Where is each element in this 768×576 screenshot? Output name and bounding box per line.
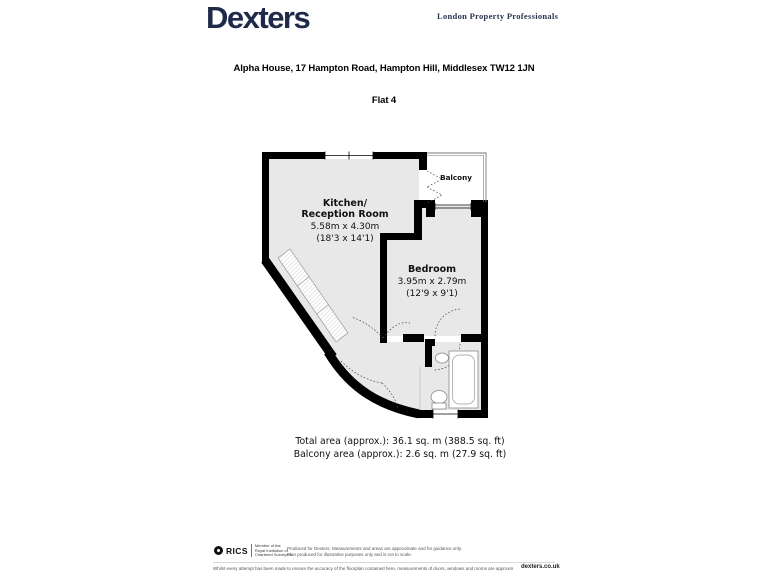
footer-divider xyxy=(213,562,555,563)
toilet xyxy=(431,391,447,404)
floorplan-drawing: Kitchen/ Reception Room 5.58m x 4.30m (1… xyxy=(256,146,492,428)
balcony-label: Balcony xyxy=(440,173,472,182)
sink xyxy=(436,353,449,363)
bedroom-label: Bedroom xyxy=(408,264,456,275)
kitchen-size-imperial: (18'3 x 14'1) xyxy=(316,234,373,244)
footer-notes: Produced for Dexters. Measurements and a… xyxy=(287,546,517,558)
website-text: dexters.co.uk xyxy=(521,564,560,570)
rics-logo-icon xyxy=(214,546,223,555)
kitchen-size-metric: 5.58m x 4.30m xyxy=(311,222,380,232)
balcony-area-text: Balcony area (approx.): 2.6 sq. m (27.9 … xyxy=(294,448,507,461)
bathtub xyxy=(449,351,478,408)
kitchen-label-line1: Kitchen/ xyxy=(323,198,368,209)
area-summary: Total area (approx.): 36.1 sq. m (388.5 … xyxy=(294,435,507,461)
unit-label: Flat 4 xyxy=(0,95,768,106)
property-address: Alpha House, 17 Hampton Road, Hampton Hi… xyxy=(0,63,768,74)
footer-disclaimer: Whilst every attempt has been made to en… xyxy=(213,566,513,571)
kitchen-label-line2: Reception Room xyxy=(301,209,388,220)
rics-lockup: RICS Member of the Royal Institution of … xyxy=(214,544,292,558)
rics-wordmark: RICS xyxy=(226,546,248,556)
total-area-text: Total area (approx.): 36.1 sq. m (388.5 … xyxy=(294,435,507,448)
bedroom-size-imperial: (12'9 x 9'1) xyxy=(406,289,458,299)
rics-divider xyxy=(251,544,252,557)
bedroom-size-metric: 3.95m x 2.79m xyxy=(398,277,467,287)
dexters-logo: Dexters xyxy=(206,0,309,36)
floorplan-page: Dexters London Property Professionals Al… xyxy=(0,0,768,576)
footer-note-line2: Plan produced for illustrative purposes … xyxy=(287,552,517,558)
brand-tagline: London Property Professionals xyxy=(437,11,558,21)
